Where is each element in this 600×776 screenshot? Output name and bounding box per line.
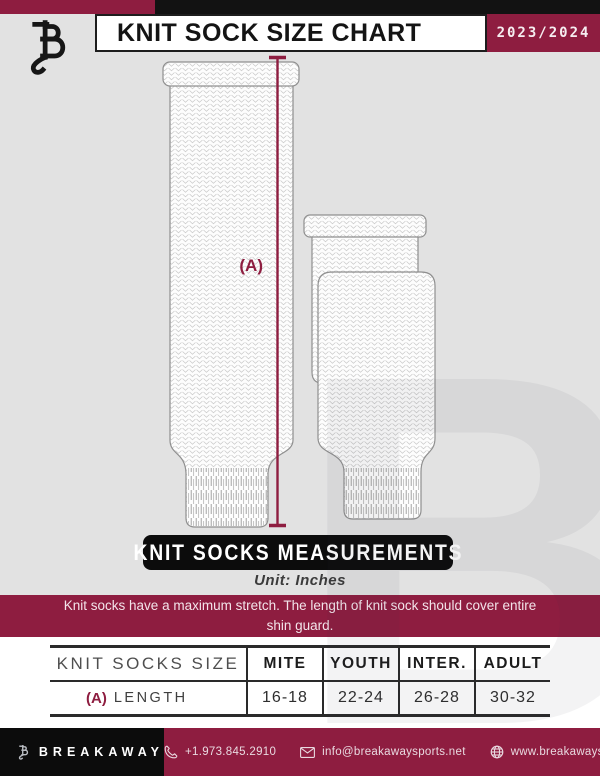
- length-value-adult: 30-32: [474, 682, 550, 714]
- small-sock-illustration: [318, 272, 435, 519]
- footer-brand-block: BREAKAWAY: [0, 728, 164, 776]
- globe-icon: [490, 745, 504, 759]
- length-value-inter: 26-28: [398, 682, 474, 714]
- footer-phone: +1.973.845.2910: [185, 746, 276, 758]
- size-table: KNIT SOCKS SIZE MITE YOUTH INTER. ADULT …: [50, 645, 550, 717]
- footer-brand-name: BREAKAWAY: [39, 745, 164, 759]
- measurement-name-length: LENGTH: [114, 690, 188, 706]
- phone-contact: +1.973.845.2910: [164, 745, 276, 759]
- measurement-label-a: (A): [239, 256, 263, 275]
- measurements-heading-text: KNIT SOCKS MEASUREMENTS: [133, 540, 463, 566]
- envelope-icon: [300, 747, 315, 758]
- length-value-youth: 22-24: [322, 682, 398, 714]
- column-header-adult: ADULT: [474, 648, 550, 682]
- size-chart-page: KNIT SOCK SIZE CHART 2023/2024: [0, 0, 600, 776]
- length-value-mite: 16-18: [246, 682, 322, 714]
- email-contact: info@breakawaysports.net: [300, 746, 466, 758]
- column-header-mite: MITE: [246, 648, 322, 682]
- unit-label: Unit: Inches: [254, 572, 346, 589]
- row-label-length: (A) LENGTH: [50, 682, 246, 714]
- footer: BREAKAWAY +1.973.845.2910 info@breakaway…: [0, 728, 600, 776]
- stretch-note-banner: Knit socks have a maximum stretch. The l…: [0, 595, 600, 637]
- column-header-inter: INTER.: [398, 648, 474, 682]
- website-contact: www.breakawaysports.net: [490, 745, 600, 759]
- footer-website: www.breakawaysports.net: [511, 746, 600, 758]
- sock-size-diagram: (A): [0, 0, 600, 600]
- size-table-title-cell: KNIT SOCKS SIZE: [50, 648, 246, 682]
- column-header-youth: YOUTH: [322, 648, 398, 682]
- footer-email: info@breakawaysports.net: [322, 746, 466, 758]
- measurements-heading: KNIT SOCKS MEASUREMENTS: [143, 535, 453, 570]
- phone-icon: [164, 745, 178, 759]
- unit-label-row: Unit: Inches: [0, 572, 600, 590]
- measurement-key-a: (A): [86, 690, 107, 707]
- footer-contact-block: +1.973.845.2910 info@breakawaysports.net: [164, 728, 600, 776]
- stretch-note-text: Knit socks have a maximum stretch. The l…: [50, 596, 550, 637]
- footer-brand-logo-icon: [16, 738, 30, 766]
